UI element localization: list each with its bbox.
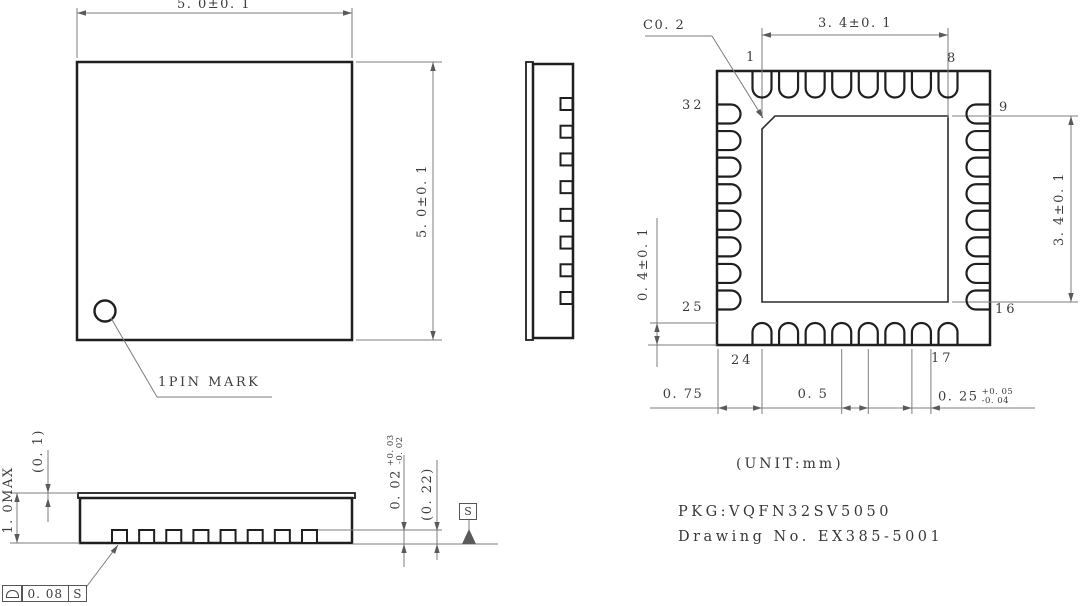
dimension-arrowhead (1068, 116, 1073, 125)
flatness-datum: S (68, 585, 87, 602)
pkg-label: PKG:VQFN32SV5050 (678, 505, 892, 519)
top-width-dim: 5. 0±0. 1 (155, 0, 273, 12)
dimension-arrowhead (903, 405, 912, 410)
dimension-arrowhead (718, 405, 727, 410)
dimension-arrowhead (430, 331, 435, 340)
side-view-terminal (561, 126, 573, 138)
side-view-terminal (561, 181, 573, 193)
unit-note: (UNIT:mm) (736, 457, 844, 471)
datum-s-symbol: S (459, 503, 477, 520)
pin-pitch-dim: 0. 5 (789, 388, 837, 402)
dimension-arrowhead (434, 544, 439, 553)
drawing-number: Drawing No. EX385-5001 (678, 530, 943, 544)
terminal-thickness-dim: (0. 22) (421, 458, 435, 530)
terminal-width-value: 0. 25 (938, 390, 979, 405)
side-view-terminal (561, 153, 573, 165)
dimension-arrowhead (654, 323, 659, 332)
pin-label-24: 24 (731, 354, 754, 368)
side-view-terminal (561, 264, 573, 276)
section-terminal (302, 530, 317, 543)
cap-thickness-dim: (0. 1) (32, 420, 46, 482)
section-terminal (139, 530, 154, 543)
dimension-arrowhead (654, 336, 659, 345)
dimension-arrowhead (842, 405, 851, 410)
top-height-dim: 5. 0±0. 1 (416, 141, 430, 261)
pin-label-25: 25 (682, 301, 705, 315)
pin-label-17: 17 (931, 352, 954, 366)
flatness-control-frame: 0. 08 S (3, 585, 87, 602)
side-view-terminal (561, 209, 573, 221)
drawing-linework (0, 0, 1080, 606)
dimension-arrowhead (753, 405, 762, 410)
overall-height-dim: 1. 0MAX (2, 454, 16, 546)
standoff-dim: 0. 02+0. 03-0. 02 (387, 424, 401, 520)
terminal-length-dim: 0. 4±0. 1 (637, 209, 651, 319)
side-view-terminal (561, 237, 573, 249)
dimension-arrowhead (1068, 293, 1073, 302)
terminal-width-dim: 0. 25+0. 05-0. 04 (938, 388, 1013, 406)
dimension-arrowhead (939, 32, 948, 37)
side-view-terminal (561, 98, 573, 110)
dimension-arrowhead (401, 544, 406, 553)
side-view-terminal (561, 292, 573, 304)
dimension-arrowhead (77, 10, 86, 15)
section-terminal (193, 530, 208, 543)
exposed-pad-outline (762, 116, 948, 302)
flatness-value: 0. 08 (21, 585, 69, 602)
dimension-arrowhead (45, 498, 50, 507)
epad-width-dim: 3. 4±0. 1 (798, 17, 912, 31)
pin-label-32: 32 (682, 99, 705, 113)
section-terminal (275, 530, 290, 543)
package-drawing: 5. 0±0. 1 5. 0±0. 1 1PIN MARK C0. 2 3. 4… (0, 0, 1080, 606)
section-terminal (112, 530, 127, 543)
pin-label-9: 9 (999, 101, 1010, 115)
section-terminal (221, 530, 236, 543)
pin-label-16: 16 (995, 303, 1018, 317)
dimension-arrowhead (931, 405, 940, 410)
section-terminal (248, 530, 263, 543)
chamfer-dim: C0. 2 (643, 19, 685, 33)
corner-to-pin-dim: 0. 75 (654, 388, 712, 402)
dimension-arrowhead (45, 484, 50, 493)
pin-label-1: 1 (746, 51, 757, 65)
profile-symbol-icon (2, 585, 23, 602)
dimension-arrowhead (762, 32, 771, 37)
epad-height-dim: 3. 4±0. 1 (1053, 149, 1067, 269)
standoff-tolerance: +0. 03-0. 02 (387, 434, 405, 466)
standoff-value: 0. 02 (389, 469, 404, 510)
datum-triangle (462, 529, 476, 544)
section-terminal (166, 530, 181, 543)
dimension-arrowhead (430, 62, 435, 71)
dimension-arrowhead (859, 405, 868, 410)
dimension-arrowhead (343, 10, 352, 15)
top-view-outline (77, 62, 352, 340)
pin1-mark-label: 1PIN MARK (158, 376, 260, 390)
pin-label-8: 8 (947, 52, 958, 66)
terminal-width-tolerance: +0. 05-0. 04 (982, 388, 1014, 406)
